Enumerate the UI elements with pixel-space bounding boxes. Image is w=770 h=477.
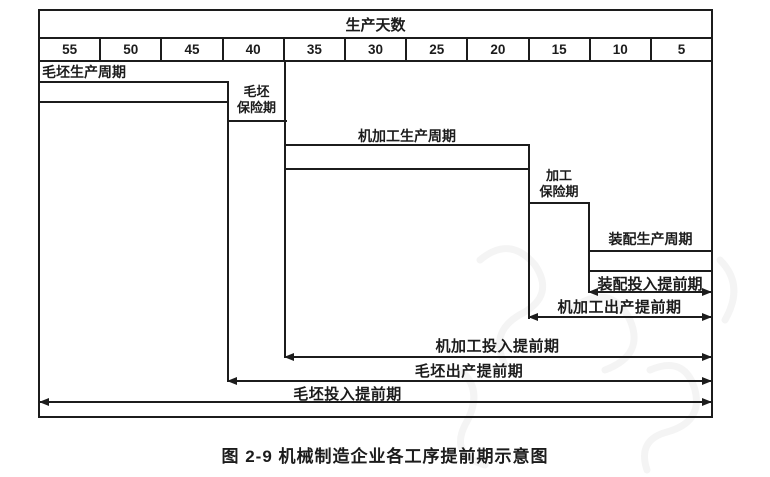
scale-tick: 20 [468,39,529,60]
connector-line-blank [227,81,229,382]
assembly-production-cycle-label: 装配生产周期 [588,229,713,249]
machining-insurance-line1: 加工 [546,168,572,184]
machining-output-leadtime-label: 机加工出产提前期 [528,296,711,317]
scale-tick: 5 [652,39,711,60]
blank-insurance-line2: 保险期 [237,100,276,116]
scale-bottom-line [38,60,713,62]
scale-tick: 25 [407,39,468,60]
assembly-input-leadtime-arrow [589,291,711,293]
blank-insurance-bottom-line [227,120,287,122]
figure-caption: 图 2-9 机械制造企业各工序提前期示意图 [0,442,770,467]
machining-insurance-line2: 保险期 [539,184,578,200]
blank-insurance-line1: 毛坯 [243,84,269,100]
scale-tick: 10 [591,39,652,60]
day-scale-row: 55 50 45 40 35 30 25 20 15 10 5 [40,39,711,60]
machining-production-cycle-label: 机加工生产周期 [284,126,530,146]
scale-tick: 45 [162,39,223,60]
scale-tick: 55 [40,39,101,60]
machining-insurance-bottom-line [528,202,590,204]
blank-insurance-label: 毛坯 保险期 [229,80,284,120]
machining-output-leadtime-arrow [529,316,711,318]
blank-production-bar [38,81,229,103]
scale-tick: 40 [224,39,285,60]
machining-input-leadtime-arrow [285,356,711,358]
production-days-header: 生产天数 [38,14,713,35]
scale-tick: 15 [530,39,591,60]
connector-line-machining-start [284,60,286,358]
scale-tick: 35 [285,39,346,60]
figure-2-9: 生产天数 55 50 45 40 35 30 25 20 15 10 5 毛坯生… [0,0,770,477]
machining-production-bar [284,144,530,170]
machining-insurance-label: 加工 保险期 [530,166,588,202]
machining-input-leadtime-label: 机加工投入提前期 [284,335,711,356]
blank-output-leadtime-arrow [228,380,711,382]
blank-input-leadtime-arrow [40,401,711,403]
blank-output-leadtime-label: 毛坯出产提前期 [227,360,711,381]
scale-tick: 30 [346,39,407,60]
assembly-production-bar [588,250,713,272]
blank-production-cycle-label: 毛坯生产周期 [42,62,126,82]
scale-tick: 50 [101,39,162,60]
